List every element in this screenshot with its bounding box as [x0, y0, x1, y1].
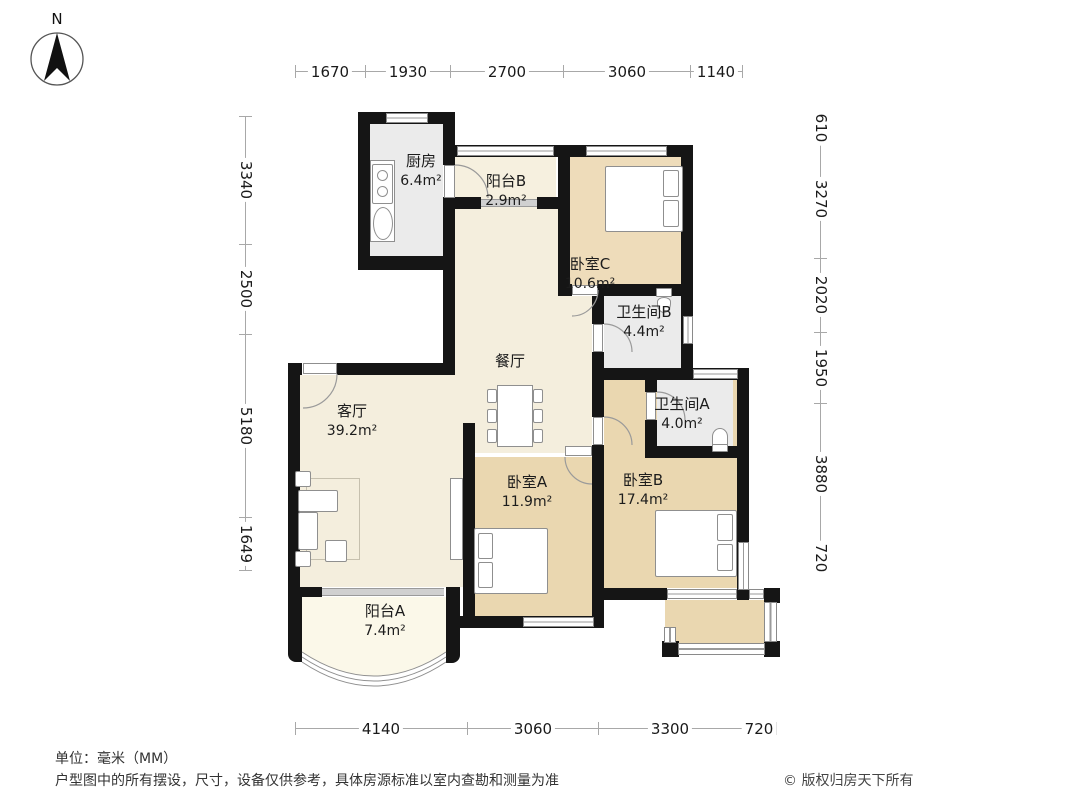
wall-balcony-a-top-west — [288, 587, 322, 597]
dim-right-5: 3880 — [812, 452, 830, 496]
pillow — [717, 544, 733, 571]
wall-dining-west — [443, 197, 455, 375]
dining-chair — [533, 429, 543, 443]
dim-tick — [239, 334, 252, 335]
dim-tick — [239, 116, 252, 117]
wall-bath-b-left-lower — [592, 352, 604, 417]
bedroom-b-bay-window — [667, 589, 737, 599]
dim-left-2: 2500 — [237, 267, 255, 311]
dim-tick — [295, 722, 296, 735]
dim-right-1: 610 — [812, 111, 830, 146]
toilet-tank-icon — [712, 444, 728, 452]
bedroom-a-window — [523, 617, 594, 627]
armchair — [325, 540, 347, 562]
dining-chair — [487, 429, 497, 443]
kitchen-window — [386, 113, 428, 123]
side-table — [295, 471, 311, 487]
room-label-kitchen: 厨房 6.4m² — [400, 152, 442, 190]
balcony-a-curve-2 — [302, 657, 446, 681]
room-label-dining: 餐厅 — [495, 352, 525, 372]
dim-tick — [814, 332, 827, 333]
dim-tick — [450, 65, 451, 78]
dim-tick — [239, 570, 252, 571]
wall-bath-b-left-upper — [592, 296, 604, 324]
bedroom-b-window — [738, 542, 749, 590]
kitchen-sink-icon — [373, 207, 393, 240]
pillow — [663, 170, 679, 197]
toilet-bowl-icon — [712, 428, 728, 445]
pillow — [478, 562, 493, 588]
dim-tick — [467, 722, 468, 735]
dim-bottom-4: 720 — [742, 720, 777, 738]
dim-bottom-1: 4140 — [359, 720, 403, 738]
entrance-door-leaf — [303, 363, 337, 374]
bath-b-door-leaf — [593, 324, 603, 352]
dim-tick — [239, 517, 252, 518]
room-label-bedroom-a: 卧室A 11.9m² — [502, 473, 552, 511]
bay-window-floor — [665, 600, 765, 643]
bay-window-south — [678, 643, 765, 655]
dim-tick — [742, 65, 743, 78]
wall-balcony-b-bottom-east — [537, 197, 570, 209]
dining-floor-east — [558, 296, 592, 453]
dim-left-3: 5180 — [237, 404, 255, 448]
balcony-a-bay-fill — [302, 648, 446, 676]
balcony-a-curve-1 — [302, 652, 446, 676]
wall-living-top — [337, 363, 455, 375]
stove-burner-icon — [377, 186, 388, 197]
dim-tick — [295, 65, 296, 78]
wall-balcony-b-bottom-west — [455, 197, 481, 209]
dim-right-2: 3270 — [812, 177, 830, 221]
side-table — [295, 551, 311, 567]
dim-tick — [814, 258, 827, 259]
dining-chair — [533, 389, 543, 403]
dim-bottom-3: 3300 — [648, 720, 692, 738]
dim-bottom-2: 3060 — [511, 720, 555, 738]
pillow — [717, 514, 733, 541]
wall-balcony-a-right — [446, 587, 460, 663]
wall-kitchen-right-upper — [443, 112, 455, 165]
bedroom-b-door-leaf — [593, 417, 603, 445]
room-label-bath-a: 卫生间A 4.0m² — [654, 395, 709, 433]
dining-chair — [533, 409, 543, 423]
wall-bedroom-b-bottom — [592, 588, 667, 600]
sofa-seat — [298, 512, 318, 550]
wall-bath-a-left-upper — [645, 380, 657, 392]
balcony-a-curve-3 — [302, 662, 446, 686]
bay-corner-se — [764, 641, 780, 657]
wall-kitchen-bottom — [358, 256, 455, 270]
wall-balcony-a-left — [288, 592, 302, 662]
balcony-b-window — [457, 146, 554, 156]
wall-bath-a-bottom — [645, 446, 749, 458]
dim-tick — [365, 65, 366, 78]
dim-top-3: 2700 — [485, 63, 529, 81]
living-balcony-slider — [322, 588, 444, 596]
wall-kitchen-left — [358, 112, 370, 270]
dim-left-1: 3340 — [237, 158, 255, 202]
disclaimer: 户型图中的所有摆设，尺寸，设备仅供参考，具体房源标准以室内查勘和测量为准 — [55, 770, 559, 790]
bay-corner-ne — [764, 588, 780, 603]
dim-tick — [598, 722, 599, 735]
dim-tick — [239, 244, 252, 245]
wall-living-bedroom-a — [463, 423, 475, 628]
kitchen-door-leaf — [444, 165, 455, 198]
room-label-balcony-a: 阳台A 7.4m² — [364, 602, 406, 640]
sofa-back — [298, 490, 338, 512]
room-label-balcony-b: 阳台B 2.9m² — [485, 172, 527, 210]
tv-cabinet — [450, 478, 463, 560]
room-label-living: 客厅 39.2m² — [327, 402, 377, 440]
dim-top-4: 3060 — [605, 63, 649, 81]
wall-bedroom-a-b — [592, 445, 604, 628]
pillow — [478, 533, 493, 559]
dim-top-2: 1930 — [386, 63, 430, 81]
dim-right-6: 720 — [812, 541, 830, 576]
bath-b-window — [683, 316, 693, 344]
bath-a-window — [693, 369, 738, 379]
bay-window-east — [764, 602, 777, 642]
bay-window-link — [749, 589, 764, 599]
bay-window-west — [664, 627, 676, 643]
dim-right-3: 2020 — [812, 273, 830, 317]
dim-tick — [814, 403, 827, 404]
pillow — [663, 200, 679, 227]
toilet-tank-icon — [656, 288, 672, 297]
dining-table — [497, 385, 533, 447]
room-label-bedroom-b: 卧室B 17.4m² — [618, 471, 668, 509]
dim-tick — [690, 65, 691, 78]
unit-note: 单位：毫米（MM） — [55, 748, 177, 768]
dining-chair — [487, 389, 497, 403]
dim-left-4: 1649 — [237, 522, 255, 566]
floorplan-canvas: N 1670 1930 2700 3060 1140 4140 3060 330… — [0, 0, 1066, 800]
bedroom-c-window — [586, 146, 667, 156]
room-label-bath-b: 卫生间B 4.4m² — [616, 303, 671, 341]
compass-north-label: N — [51, 10, 62, 28]
copyright: © 版权归房天下所有 — [783, 770, 913, 790]
dim-tick — [563, 65, 564, 78]
dim-right-4: 1950 — [812, 346, 830, 390]
bay-corner-sw — [662, 641, 679, 657]
room-label-bedroom-c: 卧室C 10.6m² — [565, 255, 615, 293]
dining-chair — [487, 409, 497, 423]
bedroom-a-door-leaf — [565, 446, 592, 456]
stove-burner-icon — [377, 170, 388, 181]
dim-top-1: 1670 — [308, 63, 352, 81]
dim-top-5: 1140 — [694, 63, 738, 81]
